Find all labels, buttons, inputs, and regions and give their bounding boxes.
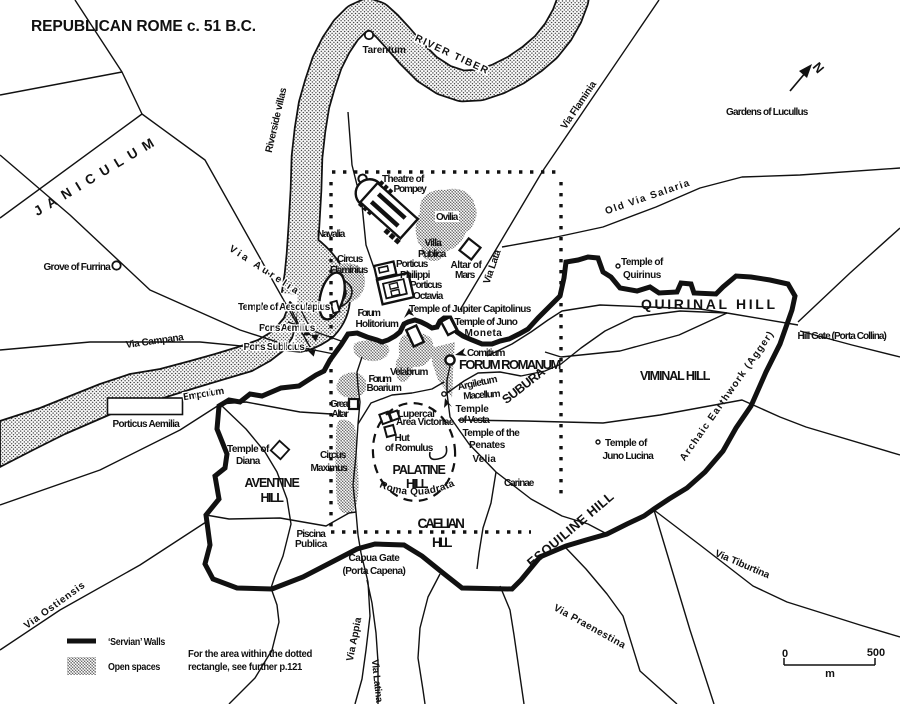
svg-text:Altar: Altar (332, 409, 349, 420)
svg-text:Maximus: Maximus (311, 463, 349, 474)
svg-text:rectangle, see further p.121: rectangle, see further p.121 (188, 662, 303, 673)
svg-text:of Romulus: of Romulus (385, 443, 434, 454)
svg-text:Publica: Publica (295, 539, 328, 550)
svg-text:Hill Gate (Porta Collina): Hill Gate (Porta Collina) (798, 331, 887, 342)
svg-text:Temple of: Temple of (227, 444, 270, 455)
svg-text:HILL: HILL (432, 535, 452, 550)
svg-text:‘Servian’ Walls: ‘Servian’ Walls (108, 637, 166, 648)
svg-text:Quirinus: Quirinus (623, 270, 662, 281)
svg-text:REPUBLICAN ROME c. 51 B.C.: REPUBLICAN ROME c. 51 B.C. (31, 18, 256, 35)
svg-text:m: m (825, 668, 835, 680)
svg-text:Velia: Velia (473, 454, 497, 465)
svg-text:Villa: Villa (425, 238, 443, 249)
svg-text:Navalia: Navalia (317, 229, 346, 240)
svg-text:Temple of Aesculapius: Temple of Aesculapius (238, 302, 331, 313)
svg-text:Porticus Aemilia: Porticus Aemilia (113, 419, 181, 430)
svg-text:Carinae: Carinae (504, 478, 535, 489)
svg-text:Temple of Juno: Temple of Juno (455, 317, 518, 328)
svg-text:Temple of the: Temple of the (463, 428, 521, 439)
svg-text:Diana: Diana (236, 456, 261, 467)
svg-text:Porticus: Porticus (410, 280, 443, 291)
svg-text:Holitorium: Holitorium (356, 319, 399, 330)
svg-text:Pons Sublicius: Pons Sublicius (244, 342, 306, 353)
svg-text:(Porta Capena): (Porta Capena) (343, 566, 406, 577)
svg-text:Pompey: Pompey (394, 184, 428, 195)
svg-text:HILL: HILL (261, 491, 285, 505)
svg-text:Capua Gate: Capua Gate (349, 553, 401, 564)
svg-text:Area Victoriae: Area Victoriae (396, 417, 455, 428)
svg-text:For the area within the dotted: For the area within the dotted (188, 649, 312, 660)
svg-text:Temple of Jupiter Capitolinus: Temple of Jupiter Capitolinus (409, 304, 532, 315)
svg-text:Porticus: Porticus (396, 259, 429, 270)
svg-text:Temple: Temple (456, 404, 490, 415)
svg-text:0: 0 (782, 648, 788, 660)
svg-text:Circus: Circus (320, 450, 347, 461)
svg-text:Forum: Forum (358, 308, 381, 319)
svg-text:QUIRINAL HILL: QUIRINAL HILL (641, 296, 775, 312)
svg-text:Octavia: Octavia (413, 291, 444, 302)
svg-text:AVENTINE: AVENTINE (245, 476, 300, 490)
svg-text:Gardens of Lucullus: Gardens of Lucullus (726, 107, 809, 118)
svg-text:Flaminius: Flaminius (330, 265, 369, 276)
svg-text:Circus: Circus (337, 254, 364, 265)
svg-text:Penates: Penates (469, 440, 506, 451)
svg-text:FORUM ROMANUM: FORUM ROMANUM (459, 357, 561, 372)
svg-text:Ovilia: Ovilia (436, 212, 459, 223)
svg-text:Temple of: Temple of (605, 438, 648, 449)
svg-text:Boarium: Boarium (367, 383, 402, 394)
svg-text:Juno Lucina: Juno Lucina (603, 451, 655, 462)
svg-text:of Vesta: of Vesta (459, 415, 491, 426)
svg-text:Velabrum: Velabrum (390, 367, 428, 378)
svg-text:Tarentum: Tarentum (363, 45, 406, 56)
svg-text:Temple of: Temple of (621, 257, 664, 268)
svg-text:Pons Aemilius: Pons Aemilius (259, 323, 316, 334)
svg-text:PALATINE: PALATINE (393, 463, 446, 477)
svg-text:VIMINAL HILL: VIMINAL HILL (640, 369, 711, 383)
svg-text:Moneta: Moneta (465, 328, 503, 339)
svg-text:Grove of Furrina: Grove of Furrina (44, 262, 112, 273)
svg-text:CAELIAN: CAELIAN (418, 516, 465, 531)
svg-text:Mars: Mars (455, 270, 476, 281)
svg-text:500: 500 (867, 647, 885, 659)
svg-text:Open spaces: Open spaces (108, 662, 161, 673)
